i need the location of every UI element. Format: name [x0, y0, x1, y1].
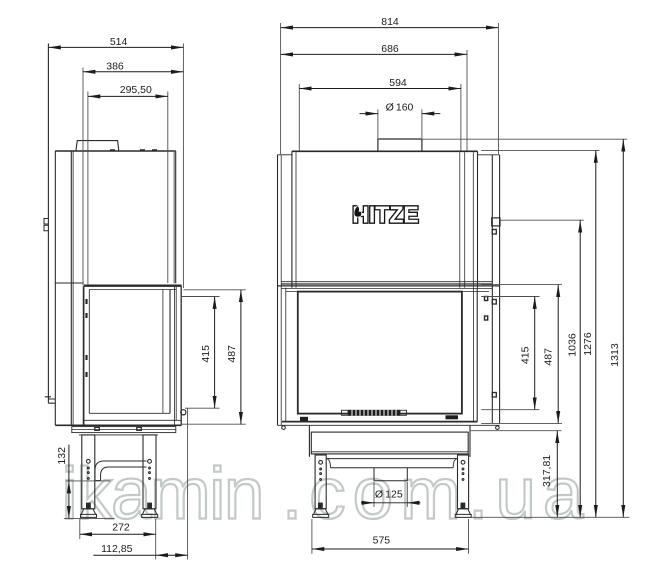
svg-text:132: 132 [56, 447, 68, 465]
svg-text:HITZE: HITZE [352, 202, 418, 228]
svg-text:295,50: 295,50 [120, 84, 152, 96]
svg-text:317,81: 317,81 [541, 455, 553, 487]
svg-text:415: 415 [520, 346, 532, 364]
svg-text:272: 272 [112, 522, 130, 534]
svg-text:Ø 160: Ø 160 [386, 101, 414, 113]
svg-text:112,85: 112,85 [101, 543, 132, 555]
svg-text:386: 386 [106, 60, 124, 72]
svg-text:686: 686 [381, 43, 399, 55]
svg-text:1313: 1313 [609, 343, 621, 367]
svg-text:814: 814 [381, 16, 399, 28]
svg-text:1036: 1036 [567, 333, 579, 357]
svg-text:487: 487 [543, 348, 555, 366]
svg-text:Ø 125: Ø 125 [375, 489, 403, 501]
svg-text:1276: 1276 [582, 332, 594, 356]
svg-text:594: 594 [389, 77, 407, 89]
svg-text:514: 514 [110, 36, 128, 48]
svg-text:487: 487 [226, 345, 238, 363]
svg-text:415: 415 [200, 345, 212, 363]
svg-text:575: 575 [373, 535, 391, 547]
